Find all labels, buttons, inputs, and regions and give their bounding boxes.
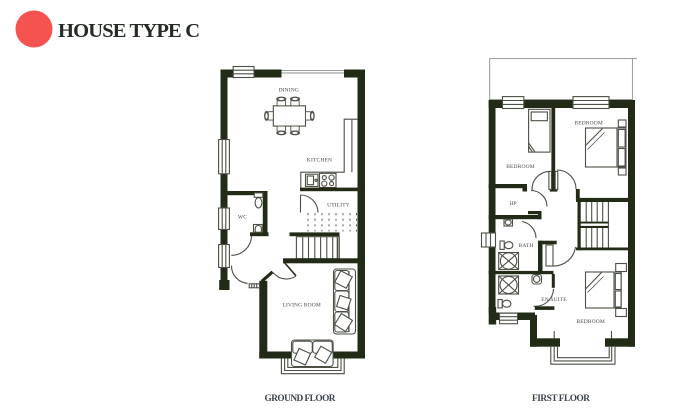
svg-text:DINING: DINING — [279, 88, 299, 94]
svg-text:FIRST FLOOR: FIRST FLOOR — [532, 394, 590, 404]
svg-text:UTILITY: UTILITY — [327, 203, 350, 209]
svg-text:BATH: BATH — [519, 243, 534, 249]
svg-text:BEDROOM: BEDROOM — [506, 164, 535, 170]
svg-text:BEDROOM: BEDROOM — [574, 121, 603, 127]
svg-text:BEDROOM: BEDROOM — [576, 319, 605, 325]
svg-text:GROUND FLOOR: GROUND FLOOR — [265, 394, 336, 404]
svg-text:EN SUITE: EN SUITE — [541, 297, 567, 303]
svg-text:WC: WC — [238, 215, 247, 221]
svg-text:LIVING ROOM: LIVING ROOM — [282, 303, 320, 309]
svg-text:KITCHEN: KITCHEN — [307, 158, 332, 164]
svg-text:HOUSE TYPE C: HOUSE TYPE C — [58, 20, 200, 42]
svg-text:HP: HP — [509, 201, 516, 207]
